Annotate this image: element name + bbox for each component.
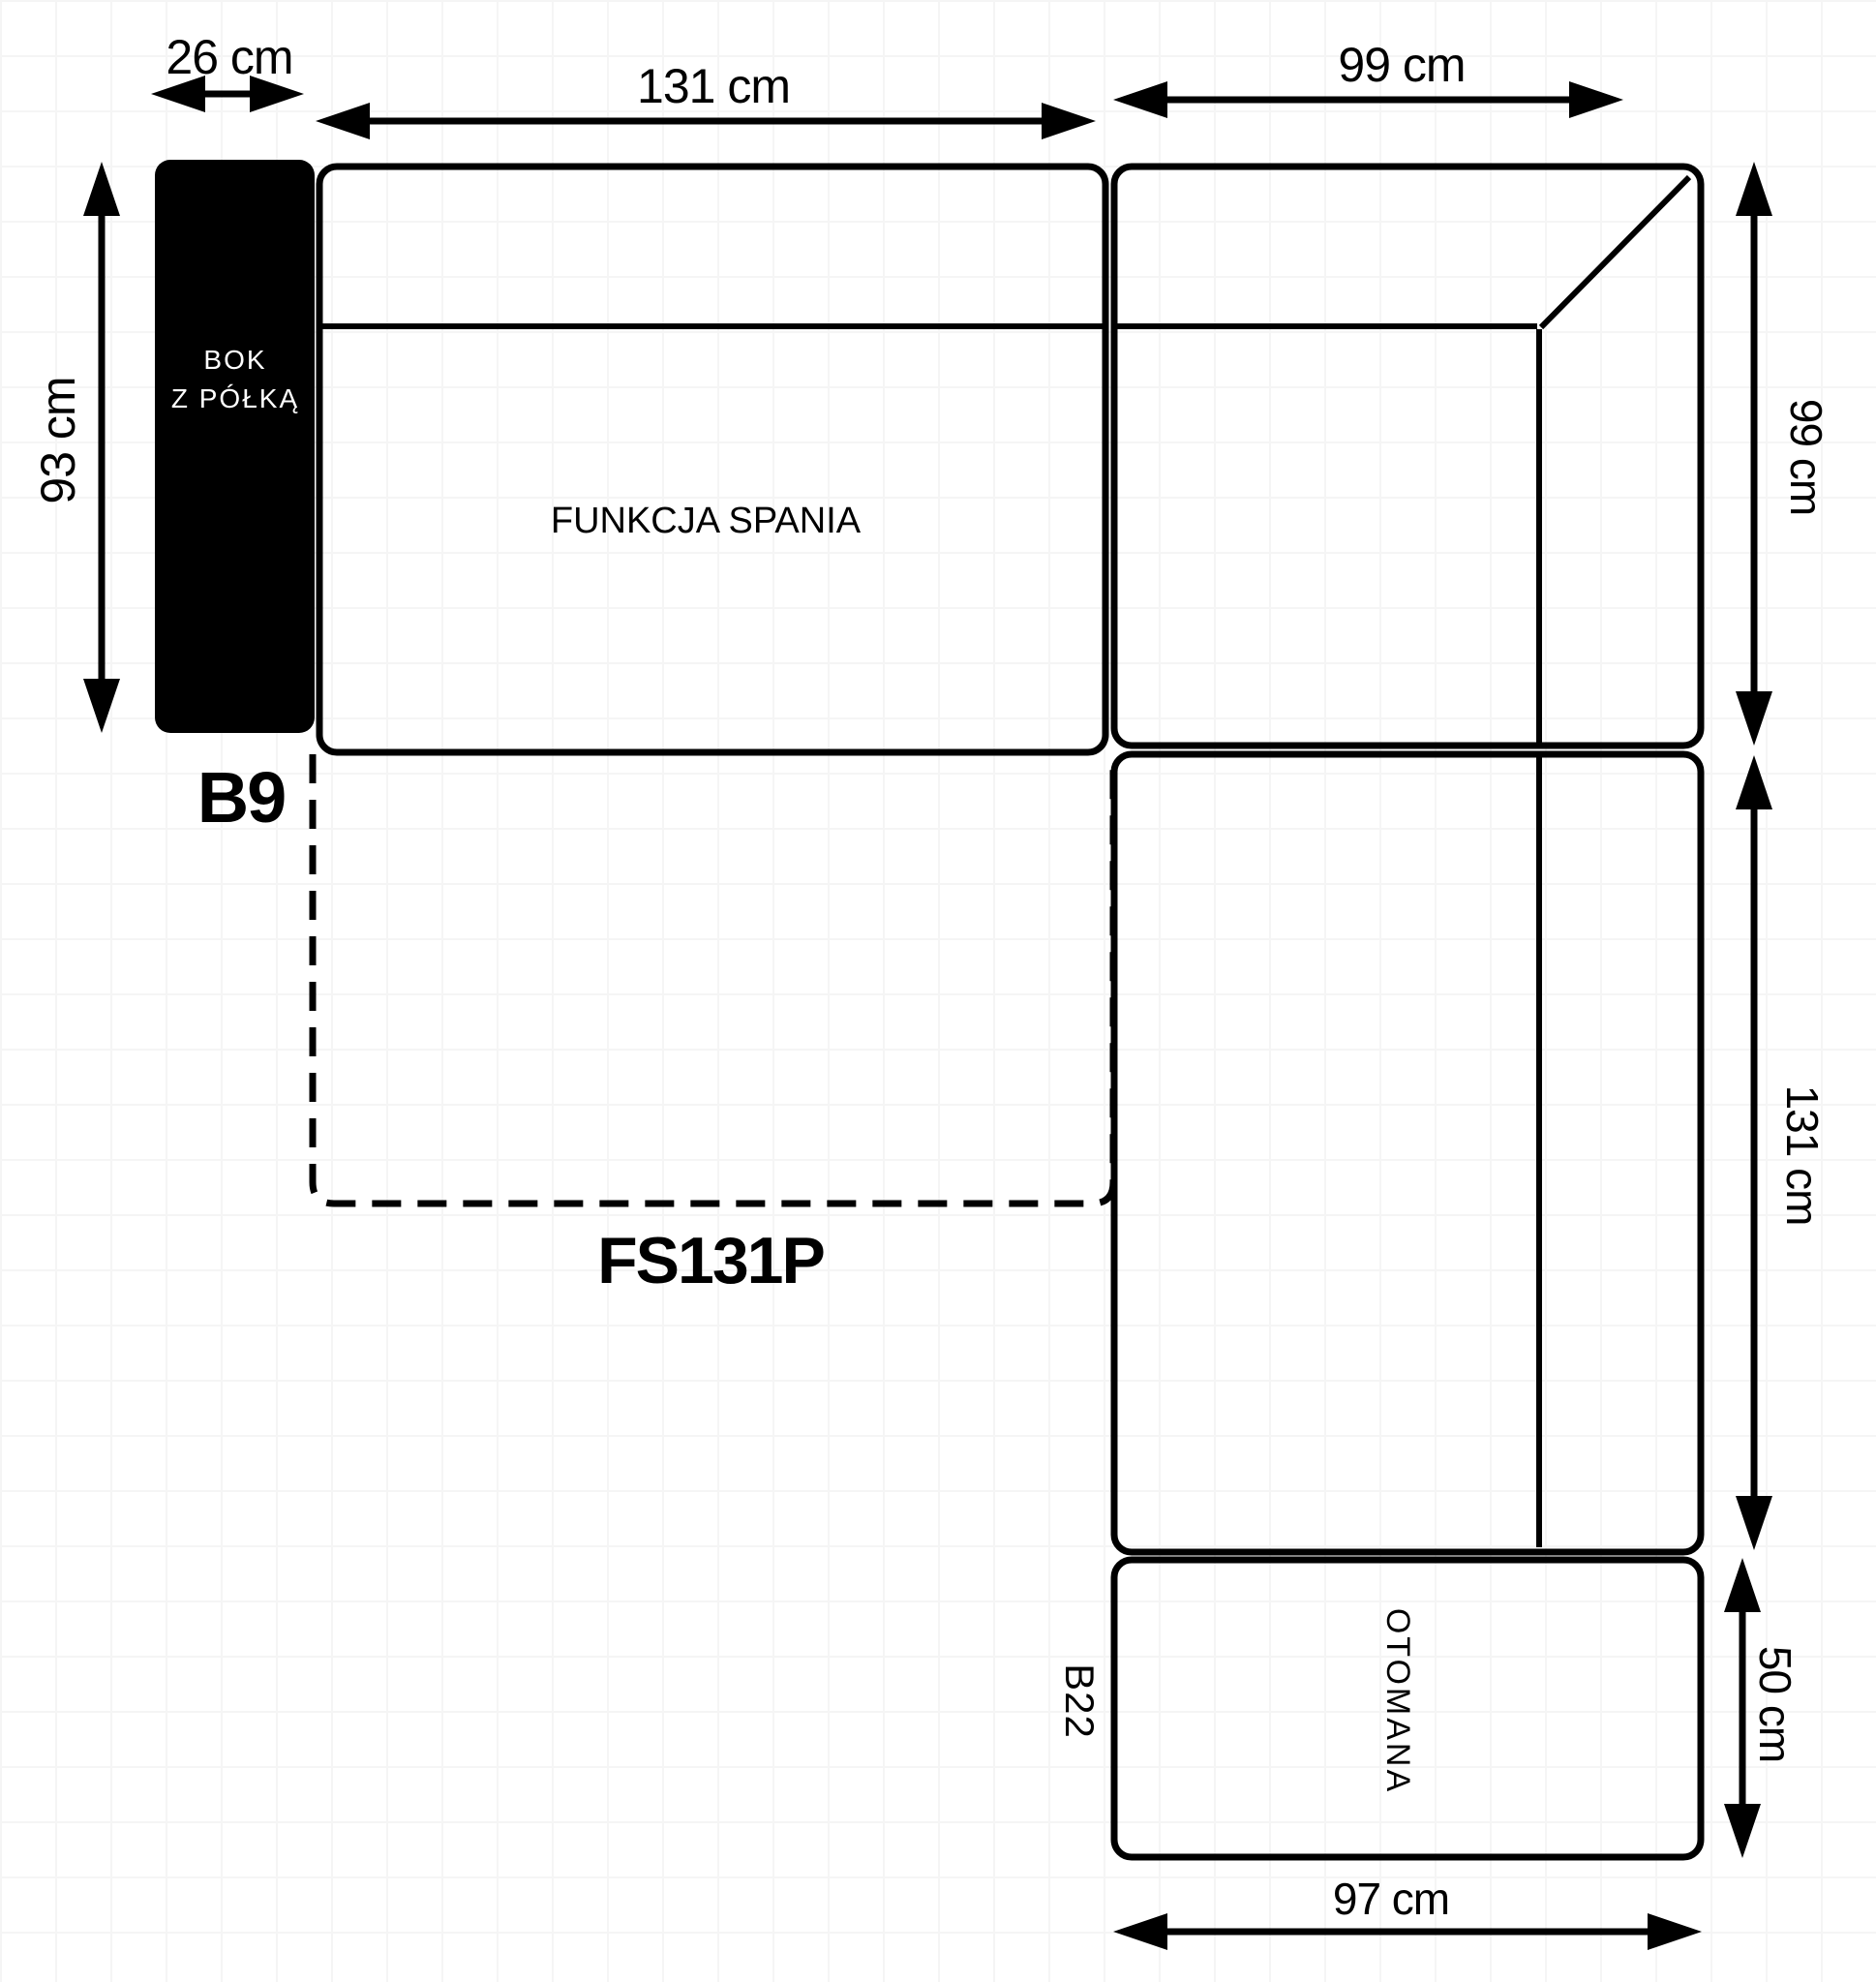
side-panel-code: B9 bbox=[197, 757, 286, 838]
arrowhead-down bbox=[83, 679, 120, 733]
dimension-chaise-length-label: 131 cm bbox=[1777, 1085, 1828, 1226]
sofa-dimension-diagram: BOK Z PÓŁKĄ FUNKCJA SPANIA OTOMANA B22 F… bbox=[0, 0, 1876, 1982]
dimension-ottoman-depth: 50 cm bbox=[1724, 1558, 1800, 1858]
arrowhead-left bbox=[1113, 81, 1167, 118]
dimension-side-panel-height-label: 93 cm bbox=[31, 377, 85, 503]
side-panel-label-line1: BOK bbox=[203, 345, 266, 375]
ottoman-code-label: B22 bbox=[1057, 1663, 1103, 1739]
sleeping-module-dashed-outline bbox=[313, 754, 1113, 1204]
arrowhead-right bbox=[1648, 1913, 1702, 1950]
dimension-chaise-length: 131 cm bbox=[1736, 755, 1828, 1550]
dimension-side-panel-width: 26 cm bbox=[151, 30, 304, 112]
dimension-corner-depth: 99 cm bbox=[1736, 162, 1831, 746]
ottoman-label: OTOMANA bbox=[1379, 1608, 1416, 1794]
arrowhead-down bbox=[1736, 1496, 1772, 1550]
arrowhead-right bbox=[1569, 81, 1623, 118]
dimension-corner-depth-label: 99 cm bbox=[1781, 399, 1831, 515]
dimension-seat-width: 131 cm bbox=[316, 59, 1096, 139]
dimension-corner-width-label: 99 cm bbox=[1338, 38, 1465, 92]
corner-diagonal-line bbox=[1541, 177, 1689, 327]
chaise-section-outline bbox=[1114, 754, 1701, 1552]
arrowhead-up bbox=[1736, 162, 1772, 216]
dimension-ottoman-width-label: 97 cm bbox=[1333, 1874, 1449, 1924]
arrowhead-right bbox=[1042, 103, 1096, 139]
sleeping-function-label: FUNKCJA SPANIA bbox=[551, 501, 862, 541]
dimension-corner-width: 99 cm bbox=[1113, 38, 1623, 118]
seat-section-outline bbox=[319, 167, 1105, 752]
arrowhead-left bbox=[1113, 1913, 1167, 1950]
arrowhead-down bbox=[1736, 691, 1772, 746]
arrowhead-up bbox=[83, 162, 120, 216]
arrowhead-up bbox=[1724, 1558, 1761, 1612]
arrowhead-down bbox=[1724, 1804, 1761, 1858]
dimension-side-panel-height: 93 cm bbox=[31, 162, 120, 733]
side-panel-rect bbox=[155, 160, 315, 733]
sleeping-module-code: FS131P bbox=[597, 1224, 824, 1297]
arrowhead-up bbox=[1736, 755, 1772, 809]
arrowhead-left bbox=[316, 103, 370, 139]
dimension-side-panel-width-label: 26 cm bbox=[166, 30, 292, 84]
diagram-svg: BOK Z PÓŁKĄ FUNKCJA SPANIA OTOMANA B22 F… bbox=[0, 0, 1876, 1982]
side-panel-label-line2: Z PÓŁKĄ bbox=[171, 383, 299, 413]
dimension-ottoman-depth-label: 50 cm bbox=[1750, 1646, 1800, 1762]
dimension-ottoman-width: 97 cm bbox=[1113, 1874, 1702, 1950]
dimension-seat-width-label: 131 cm bbox=[637, 59, 790, 113]
